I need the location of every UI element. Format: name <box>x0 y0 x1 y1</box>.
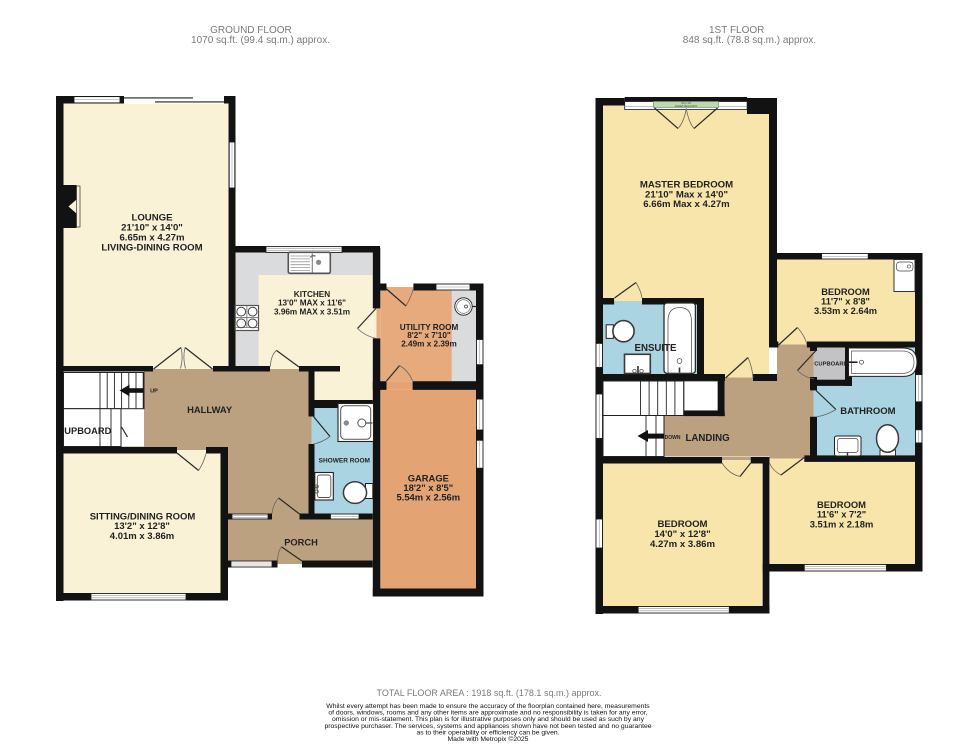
svg-text:HALLWAY: HALLWAY <box>187 404 233 415</box>
svg-text:LIVING-DINING ROOM: LIVING-DINING ROOM <box>101 243 202 254</box>
svg-text:LANDING: LANDING <box>686 433 730 444</box>
svg-text:6.66m Max x 4.27m: 6.66m Max x 4.27m <box>643 199 729 210</box>
svg-text:ENSUITE: ENSUITE <box>635 343 678 354</box>
svg-text:11'7" x 8'8": 11'7" x 8'8" <box>821 297 870 307</box>
svg-text:Made with Metropix ©2025: Made with Metropix ©2025 <box>448 735 529 743</box>
svg-text:TOTAL FLOOR AREA : 1918 sq.ft.: TOTAL FLOOR AREA : 1918 sq.ft. (178.1 sq… <box>377 688 602 698</box>
svg-text:2.49m x 2.39m: 2.49m x 2.39m <box>401 340 457 349</box>
svg-text:UPBOARD: UPBOARD <box>64 426 111 436</box>
svg-text:3.96m MAX x 3.51m: 3.96m MAX x 3.51m <box>274 307 350 316</box>
svg-text:BEDROOM: BEDROOM <box>821 287 870 297</box>
svg-text:UP: UP <box>150 389 158 395</box>
svg-text:3.51m x 2.18m: 3.51m x 2.18m <box>810 519 874 530</box>
svg-text:5.54m x 2.56m: 5.54m x 2.56m <box>397 491 461 502</box>
svg-text:SHOWER ROOM: SHOWER ROOM <box>319 457 370 464</box>
svg-text:BATHROOM: BATHROOM <box>840 406 895 417</box>
svg-text:4.27m x 3.86m: 4.27m x 3.86m <box>650 539 715 550</box>
svg-text:13'0" MAX x 11'6": 13'0" MAX x 11'6" <box>278 299 346 308</box>
svg-text:JULIET BALCONY: JULIET BALCONY <box>675 104 698 108</box>
svg-text:PORCH: PORCH <box>284 538 318 548</box>
svg-text:3.53m x 2.64m: 3.53m x 2.64m <box>814 306 877 316</box>
svg-text:4.01m x 3.86m: 4.01m x 3.86m <box>110 531 174 542</box>
svg-text:CUPBOARD: CUPBOARD <box>814 361 848 367</box>
svg-text:848 sq.ft. (78.8 sq.m.) approx: 848 sq.ft. (78.8 sq.m.) approx. <box>683 35 816 46</box>
svg-text:1070 sq.ft. (99.4 sq.m.) appro: 1070 sq.ft. (99.4 sq.m.) approx. <box>191 35 330 46</box>
svg-text:DOWN: DOWN <box>665 435 681 441</box>
svg-text:KITCHEN: KITCHEN <box>294 290 330 299</box>
